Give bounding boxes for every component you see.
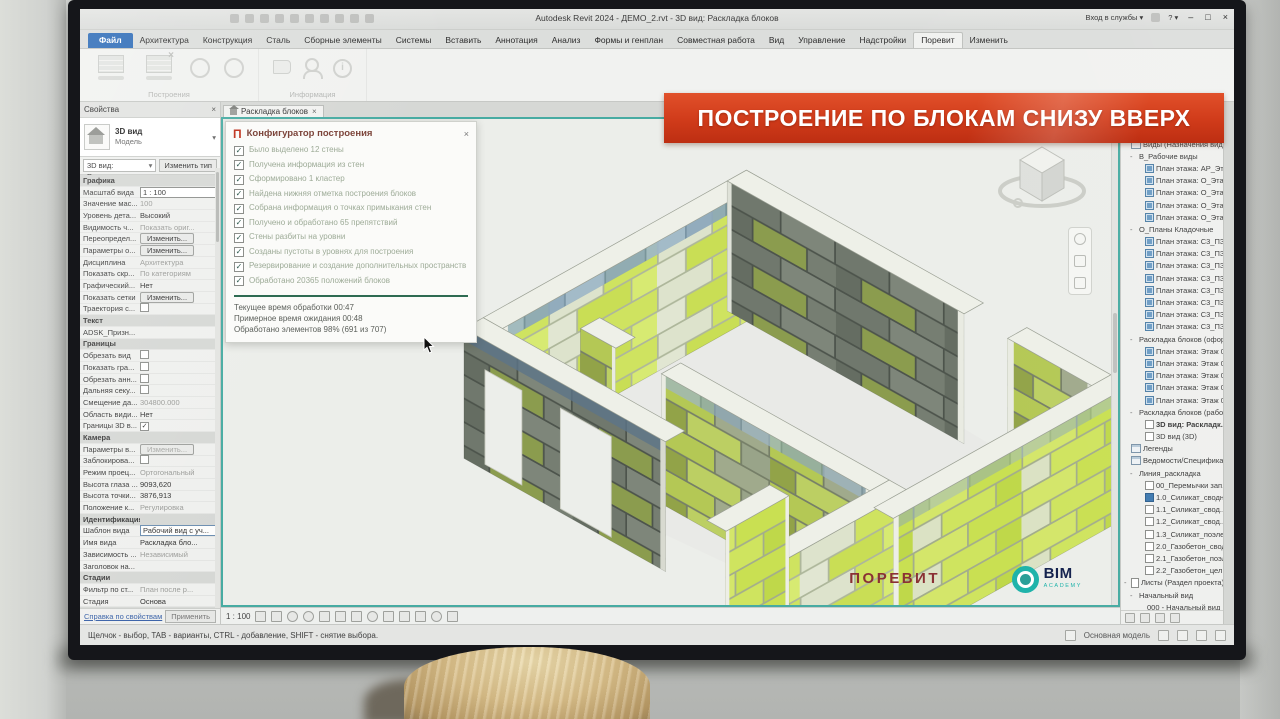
property-label: Графический... xyxy=(83,281,140,290)
ribbon-tab[interactable]: Сталь xyxy=(259,33,297,48)
property-label: Текст xyxy=(83,316,140,325)
tree-expander[interactable]: - xyxy=(1124,578,1131,587)
tree-item[interactable]: Ведомости/Специфика... xyxy=(1121,455,1223,467)
displacement-icon[interactable] xyxy=(431,611,442,622)
help-menu[interactable]: ? ▾ xyxy=(1168,13,1178,22)
tree-item[interactable]: 000 - Начальный вид xyxy=(1121,601,1223,610)
viewport-scrollbar[interactable] xyxy=(1111,119,1118,605)
property-row[interactable]: Траектория с... xyxy=(80,304,220,316)
tree-item-label: План этажа: С3_ПЗ... xyxy=(1156,261,1223,270)
tree-item-label: План этажа: О_Эта... xyxy=(1156,213,1223,222)
checklist-item: Получено и обработано 65 препятствий xyxy=(226,216,476,231)
detail-level-icon[interactable] xyxy=(255,611,266,622)
checkbox-checked-icon[interactable] xyxy=(234,160,244,170)
dialog-checklist: Было выделено 12 стены Получена информац… xyxy=(226,143,476,288)
checklist-item-label: Найдена нижняя отметка построения блоков xyxy=(249,189,416,199)
ribbon-panel-build: Построения xyxy=(80,49,259,101)
ribbon-tab[interactable]: Надстройки xyxy=(853,33,914,48)
property-value[interactable]: Изменить... xyxy=(140,245,194,256)
tree-item[interactable]: - Начальный вид xyxy=(1121,589,1223,601)
tree-item-label: 00_Перемычки зап... xyxy=(1156,481,1223,490)
property-value[interactable] xyxy=(140,385,217,396)
checklist-item: Найдена нижняя отметка построения блоков xyxy=(226,187,476,202)
tree-item[interactable]: План этажа: Этаж 0... xyxy=(1121,345,1223,357)
property-value[interactable]: План после р... xyxy=(140,585,217,594)
property-label: Стадии xyxy=(83,573,140,582)
checkbox-checked-icon[interactable] xyxy=(234,189,244,199)
property-value[interactable] xyxy=(140,455,217,466)
tree-item-icon xyxy=(1145,481,1154,490)
tree-item[interactable]: План этажа: Этаж 0... xyxy=(1121,394,1223,406)
property-row[interactable]: Параметры о... Изменить... xyxy=(80,245,220,257)
clock-icon[interactable] xyxy=(224,58,244,78)
property-value[interactable]: Раскладка бло... xyxy=(140,538,217,547)
property-value[interactable]: Регулировка xyxy=(140,503,217,512)
property-row[interactable]: Обрезать анн... xyxy=(80,374,220,386)
tree-item[interactable]: План этажа: О_Эта... xyxy=(1121,187,1223,199)
property-label: Границы 3D в... xyxy=(83,421,140,430)
property-row[interactable]: Переопредел... Изменить... xyxy=(80,233,220,245)
property-value[interactable]: Нет xyxy=(140,410,217,419)
navigation-bar[interactable] xyxy=(1068,227,1092,295)
property-row[interactable]: Границы 3D в... xyxy=(80,420,220,432)
property-label: Имя вида xyxy=(83,538,140,547)
manual-book-icon[interactable] xyxy=(273,60,291,74)
property-value[interactable]: По категориям xyxy=(140,269,217,278)
crop-view-icon[interactable] xyxy=(319,611,330,622)
property-row[interactable]: Заблокирова... xyxy=(80,456,220,468)
view-scale[interactable]: 1 : 100 xyxy=(226,612,250,621)
maximize-button[interactable]: □ xyxy=(1203,12,1212,22)
ribbon-tab[interactable]: Поревит xyxy=(913,32,962,48)
checklist-item: Собрана информация о точках примыкания с… xyxy=(226,201,476,216)
properties-rows: Графика Масштаб вида 1 : 100 Значение ма… xyxy=(80,175,220,608)
crop-region-icon[interactable] xyxy=(335,611,346,622)
filter-icon[interactable] xyxy=(447,611,458,622)
property-row[interactable]: Заголовок на... xyxy=(80,561,220,573)
ribbon-tab[interactable]: Вставить xyxy=(438,33,488,48)
property-label: Границы xyxy=(83,339,140,348)
panel-label-info: Информация xyxy=(273,89,352,101)
tree-item[interactable]: План этажа: Этаж 0... xyxy=(1121,370,1223,382)
tree-item-label: План этажа: С3_ПЗ... xyxy=(1156,237,1223,246)
tree-item-label: План этажа: С3_ПЗ... xyxy=(1156,274,1223,283)
tree-expander[interactable]: - xyxy=(1130,335,1137,344)
property-label: Камера xyxy=(83,433,140,442)
property-row[interactable]: Дисциплина Архитектура xyxy=(80,257,220,269)
property-row[interactable]: Уровень дета... Высокий xyxy=(80,210,220,222)
property-label: Переопредел... xyxy=(83,234,140,243)
person-head xyxy=(404,647,650,719)
tree-item[interactable]: 3D вид (3D) xyxy=(1121,431,1223,443)
tree-item[interactable]: План этажа: Этаж 0... xyxy=(1121,357,1223,369)
project-browser: Диспетчер проекта - ДЕМО_2... × Поиск xyxy=(1120,102,1223,624)
tree-item[interactable]: 2.2_Газобетон_цел... xyxy=(1121,565,1223,577)
property-row[interactable]: Фильтр по ст... План после р... xyxy=(80,584,220,596)
tree-item-label: 3D вид (3D) xyxy=(1156,432,1197,441)
tree-item-icon xyxy=(1145,420,1154,429)
property-value[interactable]: Рабочий вид с уч... xyxy=(140,525,217,536)
property-value[interactable]: 9093,620 xyxy=(140,480,217,489)
checkbox-checked-icon[interactable] xyxy=(234,262,244,272)
constraints-icon[interactable] xyxy=(415,611,426,622)
checklist-item-label: Получена информация из стен xyxy=(249,160,364,170)
window-title: Autodesk Revit 2024 - ДЕМО_2.rvt - 3D ви… xyxy=(80,13,1234,23)
tree-item-icon xyxy=(1145,249,1154,258)
property-label: ADSK_Призн... xyxy=(83,328,140,337)
property-row[interactable]: Графика xyxy=(80,175,220,187)
ribbon-tab[interactable]: Анализ xyxy=(545,33,588,48)
bim-academy-logo: BIM ACADEMY xyxy=(1012,566,1082,593)
ribbon-tab[interactable]: Вид xyxy=(762,33,791,48)
tree-item[interactable]: План этажа: С3_ПЗ... xyxy=(1121,248,1223,260)
right-gutter xyxy=(1223,102,1234,624)
wall-right xyxy=(1240,0,1280,719)
tree-item[interactable]: План этажа: Этаж 0... xyxy=(1121,382,1223,394)
checkbox-checked-icon[interactable] xyxy=(234,247,244,257)
property-value[interactable]: Независимый xyxy=(140,550,217,559)
tree-item-label: В_Рабочие виды xyxy=(1139,152,1198,161)
tree-item-label: План этажа: О_Эта... xyxy=(1156,201,1223,210)
property-row[interactable]: Высота точки... 3876,913 xyxy=(80,491,220,503)
bricks-icon xyxy=(98,55,124,73)
property-row[interactable]: Шаблон вида Рабочий вид с уч... xyxy=(80,526,220,538)
property-value[interactable]: Нет xyxy=(140,281,217,290)
ribbon-tab[interactable]: Изменить xyxy=(963,33,1015,48)
tree-item-icon xyxy=(1145,237,1154,246)
property-row[interactable]: Показать скр... По категориям xyxy=(80,269,220,281)
property-value[interactable]: Архитектура xyxy=(140,258,217,267)
tree-item-label: План этажа: Этаж 0... xyxy=(1156,383,1223,392)
property-row[interactable]: Смещение да... 304800.000 xyxy=(80,397,220,409)
property-row[interactable]: Текст xyxy=(80,315,220,327)
ribbon-tab[interactable]: Файл xyxy=(88,33,133,48)
property-value[interactable] xyxy=(140,303,217,314)
property-value[interactable] xyxy=(140,362,217,373)
steering-wheel-icon[interactable] xyxy=(1074,233,1086,245)
property-label: Фильтр по ст... xyxy=(83,585,140,594)
photo-of-screen: Autodesk Revit 2024 - ДЕМО_2.rvt - 3D ви… xyxy=(0,0,1280,719)
sign-in-button[interactable]: Вход в службы ▾ xyxy=(1086,13,1144,22)
properties-help-link[interactable]: Справка по свойствам xyxy=(84,612,162,621)
type-selector[interactable]: 3D вид Модель ▾ xyxy=(80,118,220,157)
tree-item[interactable]: План этажа: О_Эта... xyxy=(1121,199,1223,211)
property-label: Показать скр... xyxy=(83,269,140,278)
wall-left xyxy=(0,0,66,719)
checkbox-checked-icon[interactable] xyxy=(234,276,244,286)
configurator-dialog[interactable]: П Конфигуратор построения × Было выделен… xyxy=(225,121,477,343)
property-label: Параметры о... xyxy=(83,246,140,255)
tree-expander[interactable]: - xyxy=(1130,591,1137,600)
tree-item-icon xyxy=(1145,286,1154,295)
property-label: Параметры в... xyxy=(83,445,140,454)
mouse-cursor xyxy=(423,337,435,354)
browser-toolbar xyxy=(1121,610,1223,624)
tree-item-icon xyxy=(1145,298,1154,307)
tree-expander[interactable]: - xyxy=(1130,469,1137,478)
property-label: Значение мас... xyxy=(83,199,140,208)
checklist-item: Было выделено 12 стены xyxy=(226,143,476,158)
browser-tool-icon[interactable] xyxy=(1125,613,1135,623)
view-cube[interactable] xyxy=(994,141,1090,217)
zoom-icon[interactable] xyxy=(1074,255,1086,267)
property-label: Положение к... xyxy=(83,503,140,512)
tree-item[interactable]: - Листы (Раздел проекта) xyxy=(1121,577,1223,589)
tree-item[interactable]: 1.0_Силикат_сводн... xyxy=(1121,491,1223,503)
tree-item[interactable]: План этажа: АР_Эта... xyxy=(1121,162,1223,174)
view-type-dropdown[interactable]: 3D вид: Расклад... ▾ xyxy=(83,159,156,172)
tree-item-icon xyxy=(1145,554,1154,563)
property-row[interactable]: Показать гра... xyxy=(80,362,220,374)
sun-path-icon[interactable] xyxy=(287,611,298,622)
tree-item-icon xyxy=(1145,201,1154,210)
checklist-item-label: Стены разбиты на уровни xyxy=(249,232,345,242)
property-row[interactable]: Масштаб вида 1 : 100 xyxy=(80,187,220,199)
property-row[interactable]: Идентификация xyxy=(80,514,220,526)
ribbon-tab[interactable]: Сборные элементы xyxy=(297,33,388,48)
property-row[interactable]: Дальняя секу... xyxy=(80,385,220,397)
property-row[interactable]: Высота глаза ... 9093,620 xyxy=(80,479,220,491)
checkbox-checked-icon[interactable] xyxy=(234,218,244,228)
checklist-item-label: Было выделено 12 стены xyxy=(249,145,344,155)
property-value[interactable]: Изменить... xyxy=(140,444,194,455)
home-view-icon xyxy=(230,109,237,115)
tree-item-label: План этажа: С3_ПЗ... xyxy=(1156,322,1223,331)
title-bar: Autodesk Revit 2024 - ДЕМО_2.rvt - 3D ви… xyxy=(80,9,1234,30)
browser-filter-icon[interactable] xyxy=(1170,613,1180,623)
edit-type-button[interactable]: Изменить тип xyxy=(159,159,217,172)
bricks-delete-icon xyxy=(146,55,172,73)
property-value[interactable]: 1 : 100 xyxy=(140,187,217,198)
tree-item-label: План этажа: С3_ПЗ... xyxy=(1156,286,1223,295)
selection-filter-icon[interactable] xyxy=(1215,630,1226,641)
property-row[interactable]: Область види... Нет xyxy=(80,409,220,421)
tree-item[interactable]: План этажа: С3_ПЗ... xyxy=(1121,321,1223,333)
active-model-dropdown[interactable]: Основная модель xyxy=(1084,631,1150,640)
tree-item[interactable]: - О_Планы Кладочные xyxy=(1121,223,1223,235)
property-label: Зависимость ... xyxy=(83,550,140,559)
checkbox-checked-icon[interactable] xyxy=(234,204,244,214)
property-row[interactable]: Обрезать вид xyxy=(80,350,220,362)
checklist-item: Стены разбиты на уровни xyxy=(226,230,476,245)
property-label: Видимость ч... xyxy=(83,223,140,232)
tree-item-icon xyxy=(1145,542,1154,551)
ribbon-tab[interactable]: Архитектура xyxy=(133,33,196,48)
ribbon-tab[interactable]: Управление xyxy=(791,33,852,48)
tree-item[interactable]: План этажа: С3_ПЗ... xyxy=(1121,272,1223,284)
minimize-button[interactable]: – xyxy=(1186,12,1195,22)
checkbox-checked-icon[interactable] xyxy=(234,233,244,243)
tree-item[interactable]: План этажа: С3_ПЗ... xyxy=(1121,260,1223,272)
property-row[interactable]: Графический... Нет xyxy=(80,280,220,292)
property-value[interactable]: Изменить... xyxy=(140,292,194,303)
checkbox-checked-icon[interactable] xyxy=(234,175,244,185)
progress-line: Текущее время обработки 00:47 xyxy=(234,302,468,313)
progress-line: Обработано элементов 98% (691 из 707) xyxy=(234,324,468,335)
delete-blocks-button[interactable] xyxy=(142,55,176,80)
dialog-close-icon[interactable]: × xyxy=(464,129,469,139)
cart-icon[interactable] xyxy=(1151,13,1160,22)
ribbon-tab[interactable]: Совместная работа xyxy=(670,33,762,48)
checklist-item-label: Резервирование и создание дополнительных… xyxy=(249,261,466,271)
tree-item-icon xyxy=(1145,383,1154,392)
tree-item[interactable]: 1.3_Силикат_поэле... xyxy=(1121,528,1223,540)
tree-item-label: План этажа: Этаж 0... xyxy=(1156,371,1223,380)
tree-expander[interactable]: - xyxy=(1130,152,1137,161)
property-row[interactable]: ADSK_Призн... xyxy=(80,327,220,339)
tree-item-label: План этажа: О_Эта... xyxy=(1156,188,1223,197)
tree-item-label: 1.0_Силикат_сводн... xyxy=(1156,493,1223,502)
tv-bezel: Autodesk Revit 2024 - ДЕМО_2.rvt - 3D ви… xyxy=(68,0,1246,660)
ribbon-tab[interactable]: Формы и генплан xyxy=(587,33,670,48)
chevron-down-icon[interactable]: ▾ xyxy=(212,133,216,142)
checklist-item-label: Собрана информация о точках примыкания с… xyxy=(249,203,431,213)
tree-item-label: План этажа: С3_ПЗ... xyxy=(1156,249,1223,258)
property-row[interactable]: Имя вида Раскладка бло... xyxy=(80,537,220,549)
type-family: Модель xyxy=(115,137,142,147)
property-row[interactable]: Положение к... Регулировка xyxy=(80,502,220,514)
tree-item-icon xyxy=(1145,347,1154,356)
house-3d-view-icon xyxy=(84,124,110,150)
view-tab-label: Раскладка блоков xyxy=(241,107,308,116)
apply-button[interactable]: Применить xyxy=(165,610,216,623)
tree-item-label: 2.1_Газобетон_поэл... xyxy=(1156,554,1223,563)
property-value[interactable]: 304800.000 xyxy=(140,398,217,407)
design-options-icon[interactable] xyxy=(1158,630,1169,641)
property-value[interactable]: Показать ориг... xyxy=(140,223,217,232)
property-row[interactable]: Режим проец... Ортогональный xyxy=(80,467,220,479)
view-tab-close-icon[interactable]: × xyxy=(312,107,317,116)
status-bar: Щелчок - выбор, TAB - варианты, CTRL - д… xyxy=(80,624,1234,645)
tree-item-icon xyxy=(1145,322,1154,331)
tree-item[interactable]: Легенды xyxy=(1121,443,1223,455)
property-value[interactable] xyxy=(140,421,217,431)
properties-scrollbar[interactable] xyxy=(215,168,220,608)
browser-tool-icon[interactable] xyxy=(1155,613,1165,623)
exclude-options-icon[interactable] xyxy=(1196,630,1207,641)
tree-item[interactable]: 1.2_Силикат_свод... xyxy=(1121,516,1223,528)
browser-tool-icon[interactable] xyxy=(1140,613,1150,623)
tree-item[interactable]: План этажа: С3_ПЗ... xyxy=(1121,296,1223,308)
shadows-icon[interactable] xyxy=(303,611,314,622)
tree-item[interactable]: План этажа: О_Эта... xyxy=(1121,211,1223,223)
property-row[interactable]: Параметры в... Изменить... xyxy=(80,444,220,456)
property-value[interactable]: 100 xyxy=(140,199,217,208)
worksets-icon[interactable] xyxy=(1065,630,1076,641)
tree-item[interactable]: План этажа: С3_ПЗ... xyxy=(1121,236,1223,248)
tree-item-icon xyxy=(1145,310,1154,319)
tree-item[interactable]: - Линия_раскладка xyxy=(1121,467,1223,479)
close-button[interactable]: × xyxy=(1221,12,1230,22)
support-user-icon[interactable] xyxy=(305,58,319,72)
property-label: Обрезать анн... xyxy=(83,375,140,384)
tree-item-label: 1.2_Силикат_свод... xyxy=(1156,517,1223,526)
property-row[interactable]: Значение мас... 100 xyxy=(80,198,220,210)
configurator-button[interactable] xyxy=(94,55,128,80)
property-value[interactable] xyxy=(140,374,217,385)
checklist-item-label: Обработано 20365 положений блоков xyxy=(249,276,390,286)
property-value[interactable]: Изменить... xyxy=(140,233,194,244)
tree-item[interactable]: - Раскладка блоков (офор... xyxy=(1121,333,1223,345)
pan-icon[interactable] xyxy=(1074,277,1086,289)
editable-only-icon[interactable] xyxy=(1177,630,1188,641)
tree-expander[interactable]: - xyxy=(1130,408,1137,417)
checkbox-checked-icon[interactable] xyxy=(234,146,244,156)
revit-screen: Autodesk Revit 2024 - ДЕМО_2.rvt - 3D ви… xyxy=(80,9,1234,645)
property-label: Дисциплина xyxy=(83,258,140,267)
property-value[interactable]: Основа xyxy=(140,597,217,606)
tree-item[interactable]: 2.0_Газобетон_свод... xyxy=(1121,540,1223,552)
checklist-item: Созданы пустоты в уровнях для построения xyxy=(226,245,476,260)
tree-item[interactable]: - Раскладка блоков (рабо... xyxy=(1121,406,1223,418)
tree-item[interactable]: План этажа: С3_ПЗ... xyxy=(1121,309,1223,321)
properties-close-icon[interactable]: × xyxy=(211,105,216,114)
tree-item[interactable]: 1.1_Силикат_свод... xyxy=(1121,504,1223,516)
analytical-model-icon[interactable] xyxy=(399,611,410,622)
tree-item-icon xyxy=(1145,517,1154,526)
visual-style-icon[interactable] xyxy=(271,611,282,622)
ribbon-tab[interactable]: Аннотация xyxy=(488,33,544,48)
property-row[interactable]: Видимость ч... Показать ориг... xyxy=(80,222,220,234)
tree-item[interactable]: 3D вид: Раскладк... xyxy=(1121,418,1223,430)
ribbon-tab[interactable]: Конструкция xyxy=(196,33,259,48)
tree-expander[interactable]: - xyxy=(1130,225,1137,234)
temporary-view-icon[interactable] xyxy=(383,611,394,622)
academy-logo-text: ACADEMY xyxy=(1044,580,1082,593)
property-row[interactable]: Границы xyxy=(80,339,220,351)
reveal-hidden-icon[interactable] xyxy=(367,611,378,622)
refresh-icon[interactable] xyxy=(190,58,210,78)
property-value[interactable]: 3876,913 xyxy=(140,491,217,500)
tree-item-label: Раскладка блоков (офор... xyxy=(1139,335,1223,344)
progress-line: Примерное время ожидания 00:48 xyxy=(234,313,468,324)
property-value[interactable]: Ортогональный xyxy=(140,468,217,477)
temporary-hide-icon[interactable] xyxy=(351,611,362,622)
property-value[interactable] xyxy=(140,350,217,361)
checklist-item-label: Созданы пустоты в уровнях для построения xyxy=(249,247,413,257)
property-row[interactable]: Показать сетки Изменить... xyxy=(80,292,220,304)
tree-item-label: 1.1_Силикат_свод... xyxy=(1156,505,1223,514)
property-label: Стадия xyxy=(83,597,140,606)
tree-item-label: Начальный вид xyxy=(1139,591,1193,600)
tree-item[interactable]: 00_Перемычки зап... xyxy=(1121,479,1223,491)
property-row[interactable]: Стадия Основа xyxy=(80,596,220,608)
tree-item-icon xyxy=(1145,213,1154,222)
tree-item-icon xyxy=(1145,566,1154,575)
model-viewport[interactable]: П Конфигуратор построения × Было выделен… xyxy=(221,117,1120,607)
ribbon-tab[interactable]: Системы xyxy=(389,33,439,48)
tree-item[interactable]: План этажа: С3_ПЗ... xyxy=(1121,284,1223,296)
view-tab[interactable]: Раскладка блоков × xyxy=(223,105,324,117)
bim-logo-text: BIM xyxy=(1044,567,1082,580)
property-label: Показать гра... xyxy=(83,363,140,372)
dialog-divider xyxy=(234,295,468,297)
tree-item[interactable]: - В_Рабочие виды xyxy=(1121,150,1223,162)
tree-item-label: О_Планы Кладочные xyxy=(1139,225,1213,234)
property-label: Режим проец... xyxy=(83,468,140,477)
about-info-icon[interactable]: i xyxy=(333,59,352,78)
property-row[interactable]: Стадии xyxy=(80,572,220,584)
ribbon: Построения i Информация ПОСТРОЕНИЕ ПО БЛ… xyxy=(80,49,1234,102)
property-row[interactable]: Камера xyxy=(80,432,220,444)
tree-item[interactable]: 2.1_Газобетон_поэл... xyxy=(1121,552,1223,564)
tree-item[interactable]: План этажа: О_Эта... xyxy=(1121,175,1223,187)
property-value[interactable]: Высокий xyxy=(140,211,217,220)
properties-title: Свойства xyxy=(84,105,119,114)
property-row[interactable]: Зависимость ... Независимый xyxy=(80,549,220,561)
checklist-item: Обработано 20365 положений блоков xyxy=(226,274,476,289)
property-label: Траектория с... xyxy=(83,304,140,313)
